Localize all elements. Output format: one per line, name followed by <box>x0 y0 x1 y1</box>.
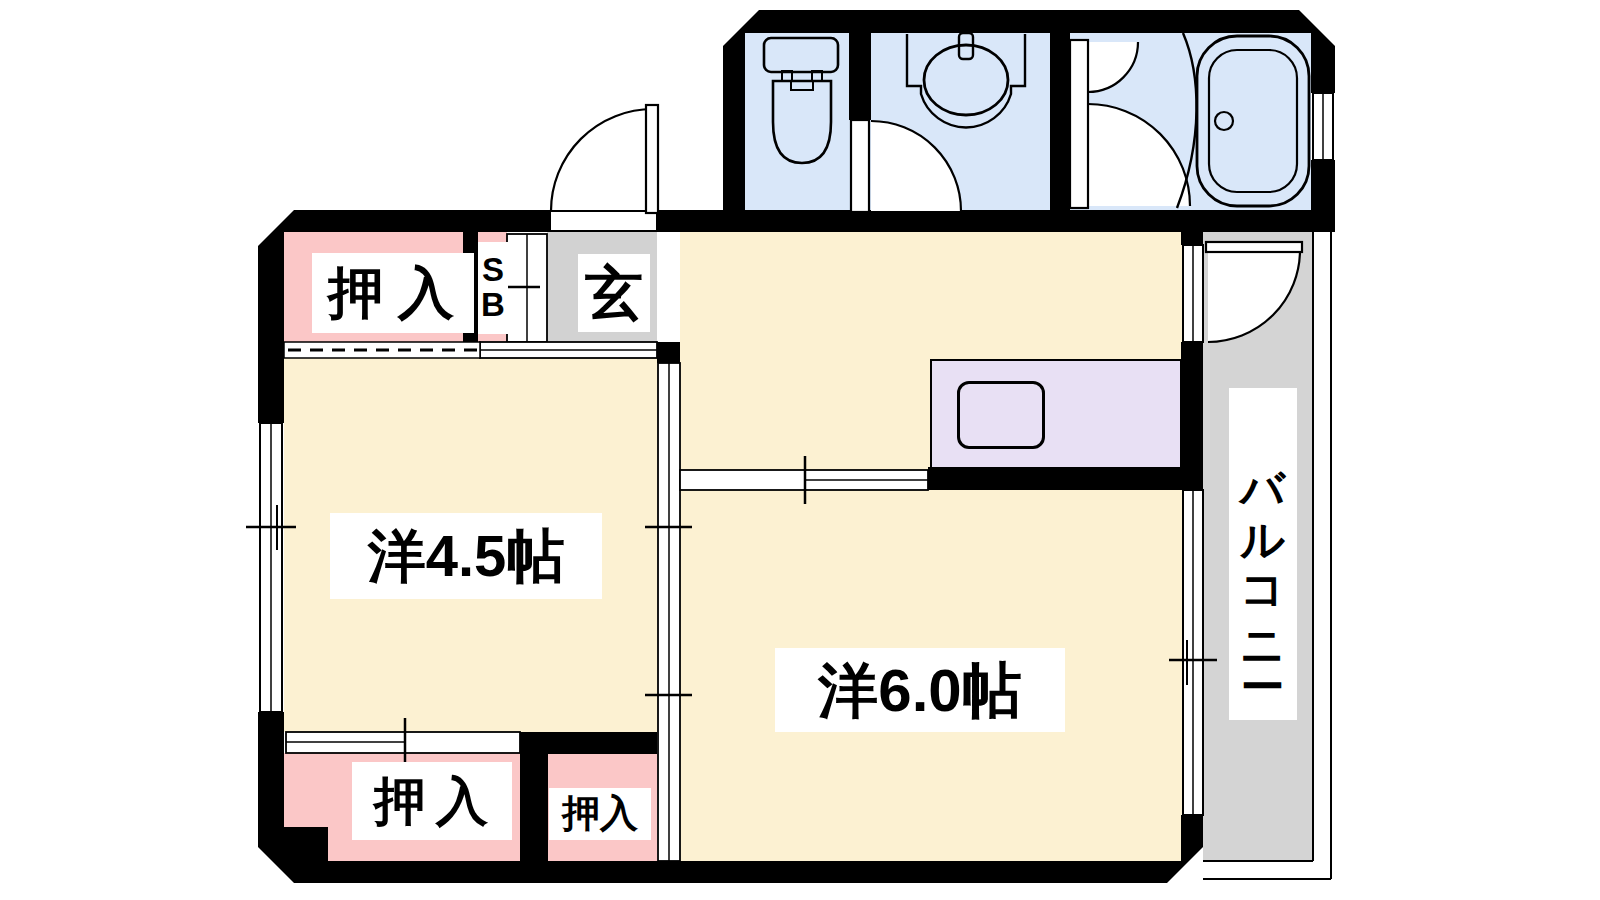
washroom-door <box>1070 40 1190 208</box>
window-bath <box>1313 93 1333 160</box>
balcony-door <box>1206 242 1302 342</box>
label-entrance: 玄 <box>578 254 650 332</box>
room-partition-vertical <box>645 363 692 861</box>
entrance-bottom-sliding-door <box>480 342 657 358</box>
entrance-door <box>550 105 658 231</box>
toilet-room-door <box>851 120 961 212</box>
floor-plan: 押入 SB 玄 洋4.5帖 洋6.0帖 バルコニー 押入 押入 <box>0 0 1600 900</box>
label-balcony: バルコニー <box>1229 388 1297 720</box>
label-shoe-box: SB <box>478 242 508 334</box>
label-closet-bottom-large: 押入 <box>352 762 512 840</box>
window-left <box>246 423 296 712</box>
entrance-door-leaf <box>646 105 658 213</box>
bathtub-icon <box>1197 36 1309 206</box>
washbasin-icon <box>907 33 1025 127</box>
label-closet-top: 押入 <box>312 253 474 333</box>
plan-linework <box>0 0 1600 900</box>
label-room-4-5: 洋4.5帖 <box>330 513 602 599</box>
closet-top-dashed-front <box>284 342 480 358</box>
label-closet-bottom-small: 押入 <box>549 788 651 840</box>
room-partition-horizontal <box>680 456 928 504</box>
window-dk-right <box>1183 245 1203 342</box>
toilet-icon <box>764 38 838 163</box>
window-balcony <box>1169 490 1217 815</box>
closet-bottom-sliding-door <box>286 718 520 767</box>
label-room-6-0: 洋6.0帖 <box>775 648 1065 732</box>
